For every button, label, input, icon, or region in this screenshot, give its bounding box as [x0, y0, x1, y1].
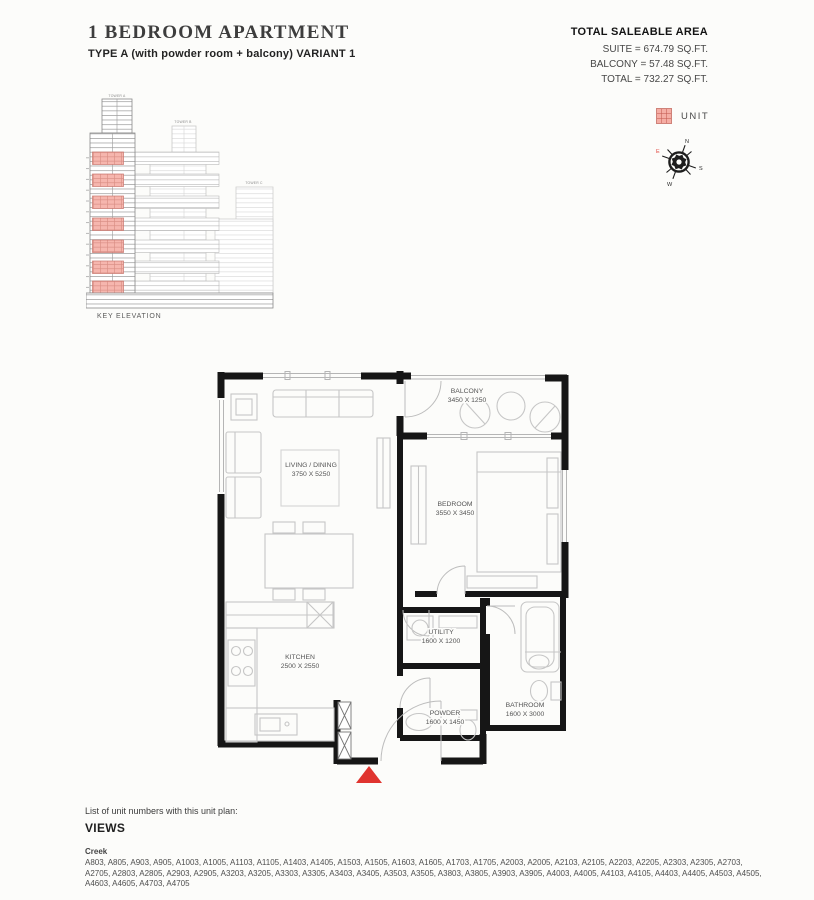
- compass-s: S: [699, 166, 703, 172]
- floorplan-page: 1 BEDROOM APARTMENT TYPE A (with powder …: [0, 0, 814, 900]
- page-title: 1 BEDROOM APARTMENT: [88, 22, 349, 44]
- floor-plan: LIVING / DINING 3750 X 5250 BALCONY 3450…: [215, 366, 575, 794]
- views-heading: VIEWS: [85, 821, 125, 835]
- compass-n: N: [685, 139, 689, 145]
- balcony-area: BALCONY = 57.48 SQ.FT.: [571, 57, 708, 72]
- entrance-marker-icon: [356, 766, 382, 783]
- kitchen-label: KITCHEN: [285, 654, 315, 661]
- key-elevation-diagram: TOWER C TOWER B TOWER A: [86, 92, 282, 314]
- windows: [220, 372, 567, 545]
- suite-area: SUITE = 674.79 SQ.FT.: [571, 42, 708, 57]
- tower-c-label: TOWER C: [245, 181, 263, 185]
- compass-icon: N E S W: [652, 134, 712, 196]
- bathroom-dims: 1600 X 3000: [506, 711, 545, 718]
- compass-e: E: [656, 149, 660, 155]
- unit-numbers-list: A803, A805, A903, A905, A1003, A1005, A1…: [85, 858, 763, 890]
- bedroom-label: BEDROOM: [437, 501, 472, 508]
- saleable-area-heading: TOTAL SALEABLE AREA: [571, 26, 708, 38]
- view-group-name: Creek: [85, 847, 107, 856]
- powder-label: POWDER: [430, 710, 461, 717]
- saleable-area-block: TOTAL SALEABLE AREA SUITE = 674.79 SQ.FT…: [571, 26, 708, 87]
- bedroom-dims: 3550 X 3450: [436, 510, 475, 517]
- floor-number-ticks: [86, 150, 90, 295]
- balcony-label: BALCONY: [451, 388, 484, 395]
- podium: [86, 293, 273, 308]
- utility-label: UTILITY: [428, 629, 454, 636]
- utility-dims: 1600 X 1200: [422, 638, 461, 645]
- key-elevation-caption: KEY ELEVATION: [97, 313, 161, 320]
- living-dining-dims: 3750 X 5250: [292, 471, 331, 478]
- unit-list-intro: List of unit numbers with this unit plan…: [85, 806, 238, 816]
- page-subtitle: TYPE A (with powder room + balcony) VARI…: [88, 48, 355, 60]
- tower-b-label: TOWER B: [174, 120, 192, 124]
- living-dining-label: LIVING / DINING: [285, 462, 337, 469]
- tower-a-label: TOWER A: [109, 94, 127, 98]
- kitchen-dims: 2500 X 2550: [281, 663, 320, 670]
- total-area: TOTAL = 732.27 SQ.FT.: [571, 72, 708, 87]
- balcony-dims: 3450 X 1250: [448, 397, 487, 404]
- interior-walls: [400, 436, 567, 738]
- unit-legend: UNIT: [656, 108, 709, 124]
- unit-swatch-icon: [656, 108, 672, 124]
- powder-dims: 1600 X 1450: [426, 719, 465, 726]
- compass-w: W: [667, 182, 673, 188]
- unit-legend-label: UNIT: [681, 111, 709, 122]
- bathroom-label: BATHROOM: [506, 702, 545, 709]
- furniture: [226, 390, 561, 742]
